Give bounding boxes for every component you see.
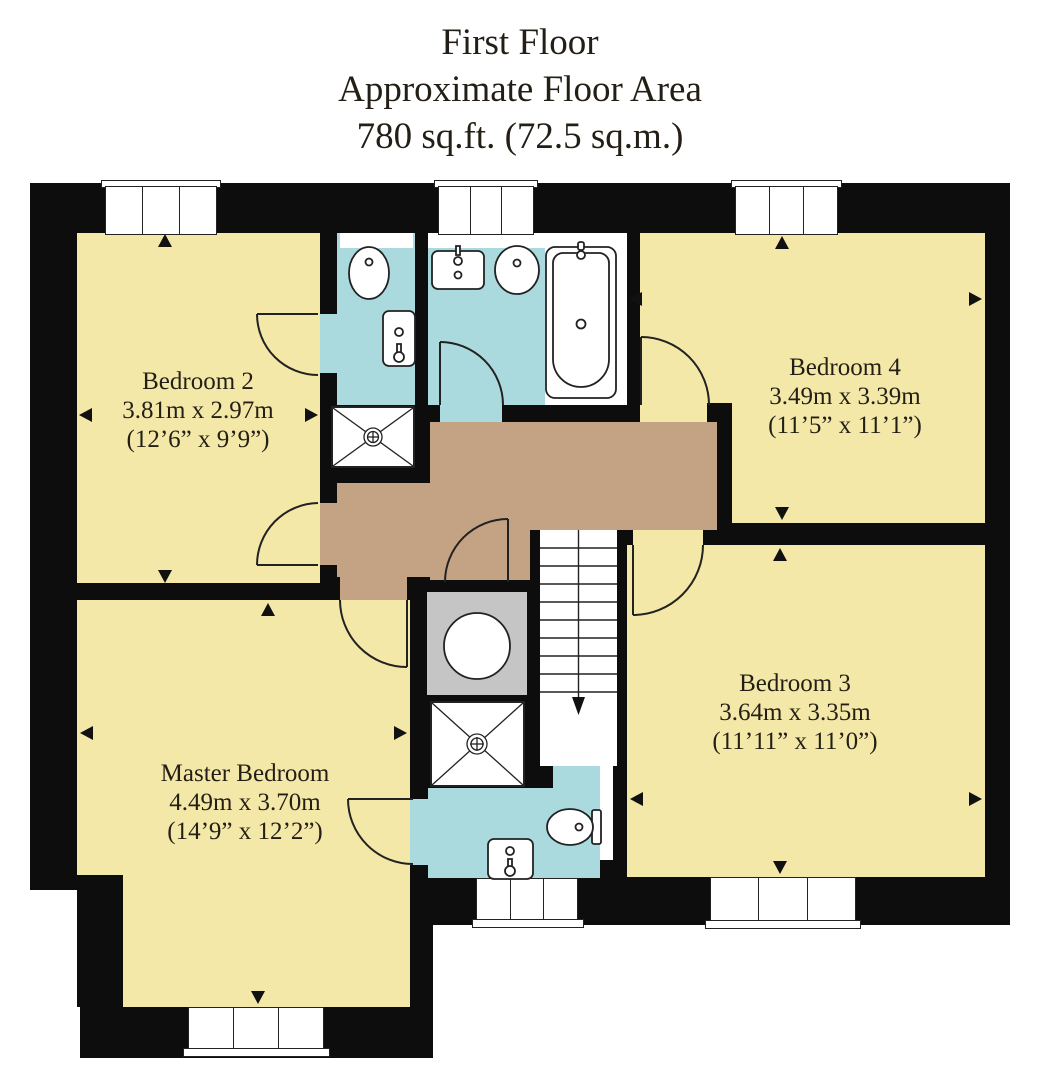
door-bedroom3 [633,545,703,615]
dim-arrow [630,792,643,806]
room-size-imperial: (11’11” x 11’0”) [665,727,925,756]
door-bedroom4 [641,337,709,405]
door-bedroom2-to-ensuite [257,314,318,375]
dim-arrow [80,726,93,740]
dim-arrow [251,991,265,1004]
label-bedroom2: Bedroom 2 3.81m x 2.97m (12’6” x 9’9”) [60,367,336,454]
toilet-master-ensuite [547,809,601,845]
dim-arrow [394,726,407,740]
dim-arrow [775,507,789,520]
basin-bathroom [432,246,484,289]
room-name: Master Bedroom [112,759,378,788]
room-name: Bedroom 3 [665,669,925,698]
toilet-bathroom [495,246,539,294]
label-bedroom4: Bedroom 4 3.49m x 3.39m (11’5” x 11’1”) [715,353,975,440]
room-size-metric: 4.49m x 3.70m [112,788,378,817]
bath-plug-icon [577,320,586,329]
dim-arrow [775,236,789,249]
door-bedroom2-to-landing [257,503,318,565]
bath-tap-icon [578,242,584,250]
door-master-bedroom [340,600,407,667]
room-size-imperial: (12’6” x 9’9”) [60,425,336,454]
staircase [540,530,617,715]
label-bedroom3: Bedroom 3 3.64m x 3.35m (11’11” x 11’0”) [665,669,925,756]
dim-arrow [158,234,172,247]
stairs-down-arrow [572,697,585,715]
floorplan-page: First Floor Approximate Floor Area 780 s… [0,0,1040,1080]
room-name: Bedroom 2 [60,367,336,396]
dim-arrow [773,861,787,874]
dimension-arrows [79,234,982,1004]
room-size-metric: 3.49m x 3.39m [715,382,975,411]
basin-ensuite [383,311,415,366]
door-bathroom [440,342,503,405]
room-size-metric: 3.64m x 3.35m [665,698,925,727]
room-size-imperial: (11’5” x 11’1”) [715,411,975,440]
basin-master-ensuite [488,839,533,879]
dim-arrow [773,548,787,561]
room-size-imperial: (14’9” x 12’2”) [112,817,378,846]
plan-lineart [0,0,1040,1080]
room-name: Bedroom 4 [715,353,975,382]
toilet-ensuite [349,247,389,299]
dim-arrow [969,292,982,306]
dim-arrow [629,292,642,306]
shower-tray-landing-detail [432,703,523,785]
dim-arrow [158,570,172,583]
bath [546,242,616,398]
room-size-metric: 3.81m x 2.97m [60,396,336,425]
label-master-bedroom: Master Bedroom 4.49m x 3.70m (14’9” x 12… [112,759,378,846]
door-airing-cupboard [445,519,508,582]
bath-tap-icon [577,251,585,259]
shower-tray-ensuite-detail [333,408,413,466]
dim-arrow [969,792,982,806]
hot-water-cylinder [444,613,510,679]
dim-arrow [261,603,275,616]
